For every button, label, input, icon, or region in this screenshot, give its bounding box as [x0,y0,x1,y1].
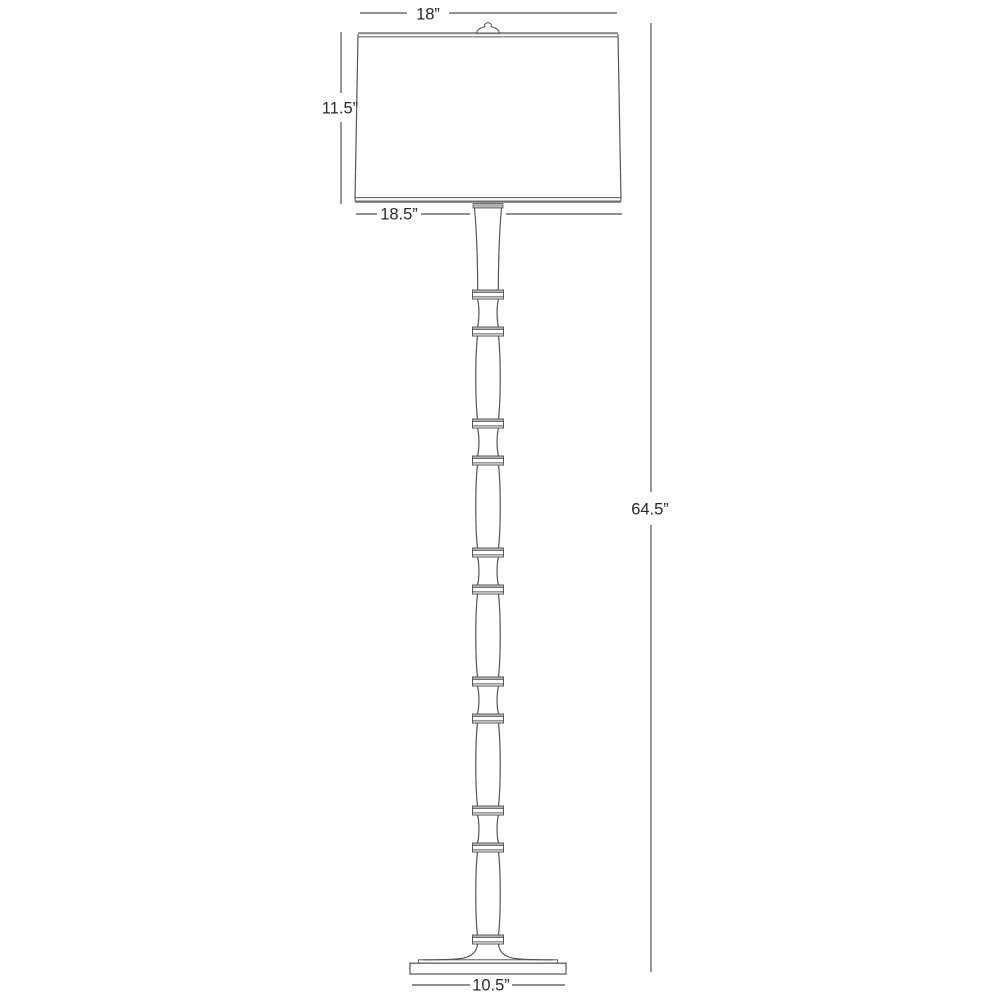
column-neck-cap [473,204,503,209]
lamp-dimension-diagram: 18” 11.5” 18.5” [0,0,1000,1000]
dimension-shade-height: 11.5” [322,32,358,204]
bamboo-node [473,806,504,815]
column-segment-long [476,465,500,548]
base-width-label: 10.5” [472,977,510,995]
column-segment-short [478,557,499,585]
column-taper [475,208,502,290]
bamboo-node [473,456,504,465]
column-segment-long [476,594,500,677]
shade-body [355,33,621,202]
bamboo-node [473,714,504,723]
bamboo-node [473,290,504,299]
dimension-base-width: 10.5” [412,977,565,995]
bamboo-node [473,419,504,428]
lamp-finial [477,23,500,33]
lamp-base [410,944,566,974]
lamp-shade [355,33,621,202]
base-plinth [410,963,566,974]
base-flare [423,944,553,960]
shade-bottom-width-label: 18.5” [380,206,418,224]
column-segment-long [476,852,500,935]
column-segment-long [476,336,500,419]
bamboo-node [473,548,504,557]
bamboo-node [473,843,504,852]
column-segment-short [478,686,499,714]
column-segment-long [476,723,500,806]
diagram-svg: 18” 11.5” 18.5” [0,0,1000,1000]
bamboo-node [473,935,504,944]
column-segment-short [478,299,499,327]
column-segment-short [478,428,499,456]
bamboo-node [473,585,504,594]
shade-height-label: 11.5” [322,100,358,118]
bamboo-node [473,677,504,686]
bamboo-node [473,327,504,336]
total-height-label: 64.5” [631,501,669,519]
shade-top-width-label: 18” [416,6,440,24]
column-segment-short [478,815,499,843]
dimension-total-height: 64.5” [631,23,669,972]
dimension-shade-top-width: 18” [360,6,617,24]
lamp-column [473,204,504,945]
